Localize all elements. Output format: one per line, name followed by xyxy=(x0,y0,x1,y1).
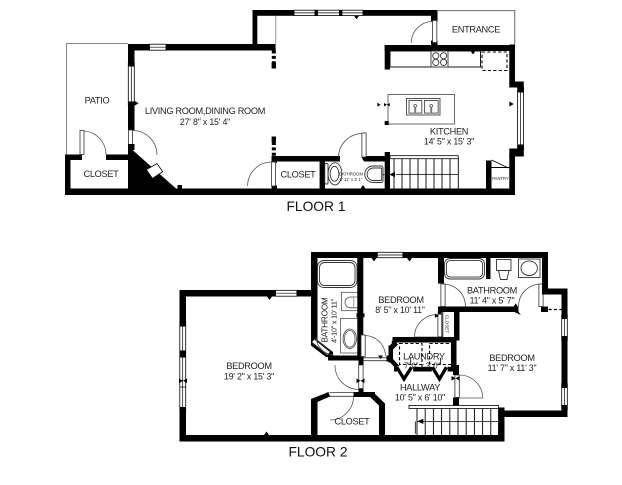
svg-text:10' 5" x 6' 10": 10' 5" x 6' 10" xyxy=(395,393,445,403)
svg-text:HALLWAY: HALLWAY xyxy=(400,383,440,393)
svg-text:CLOSET: CLOSET xyxy=(335,417,371,427)
svg-text:CLOSET: CLOSET xyxy=(445,315,450,334)
svg-text:11' 7" x 11' 3": 11' 7" x 11' 3" xyxy=(488,363,537,373)
svg-text:19' 2" x 15' 3": 19' 2" x 15' 3" xyxy=(224,372,274,382)
svg-text:PATIO: PATIO xyxy=(85,96,110,106)
svg-text:BATHROOM: BATHROOM xyxy=(321,297,330,342)
svg-text:LIVING ROOM,DINING ROOM: LIVING ROOM,DINING ROOM xyxy=(145,106,265,116)
svg-text:LAUNDRY: LAUNDRY xyxy=(403,352,445,362)
svg-text:FLOOR 2: FLOOR 2 xyxy=(288,445,347,460)
svg-text:4'-10" x 10' 11": 4'-10" x 10' 11" xyxy=(330,298,339,343)
svg-text:ENTRANCE: ENTRANCE xyxy=(452,25,500,35)
svg-text:CLOSET: CLOSET xyxy=(281,170,317,180)
svg-text:BEDROOM: BEDROOM xyxy=(378,295,423,305)
svg-text:KITCHEN: KITCHEN xyxy=(430,127,468,137)
svg-text:6' 11" x 3' 1": 6' 11" x 3' 1" xyxy=(340,177,363,182)
svg-text:FLOOR 1: FLOOR 1 xyxy=(286,199,345,214)
svg-text:BEDROOM: BEDROOM xyxy=(489,353,534,363)
svg-text:BEDROOM: BEDROOM xyxy=(226,361,271,371)
svg-text:CLOSET: CLOSET xyxy=(84,169,120,179)
svg-text:7' 0" x 3' 0": 7' 0" x 3' 0" xyxy=(404,362,440,371)
svg-text:14' 5" x 15' 3": 14' 5" x 15' 3" xyxy=(424,137,474,147)
svg-text:PANTRY: PANTRY xyxy=(492,176,509,181)
svg-text:BATHROOM: BATHROOM xyxy=(467,286,517,296)
svg-text:BATHROOM: BATHROOM xyxy=(339,172,363,177)
svg-text:11' 4" x 5' 7": 11' 4" x 5' 7" xyxy=(470,296,515,306)
svg-text:8' 5" x 10' 11": 8' 5" x 10' 11" xyxy=(375,305,425,315)
svg-text:27' 8" x 15' 4": 27' 8" x 15' 4" xyxy=(180,117,230,127)
